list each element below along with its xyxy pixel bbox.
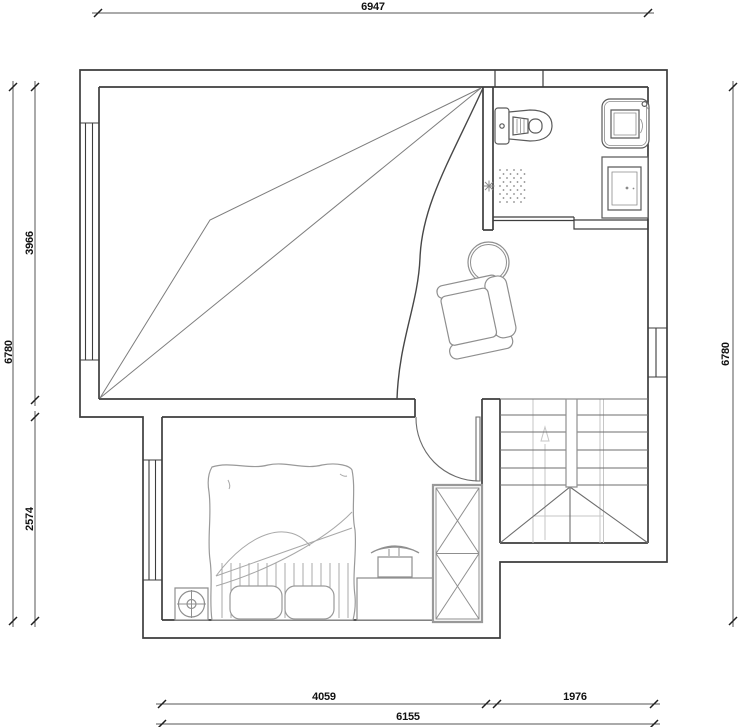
drain-dot	[520, 177, 522, 179]
dim-bottom-stair: 1976	[563, 691, 587, 703]
washbasin-symbol	[602, 99, 649, 148]
exterior-walls	[80, 70, 667, 638]
drain-dot	[503, 181, 505, 183]
drain-dot	[499, 201, 501, 203]
drain-dot	[499, 169, 501, 171]
dim-left-total: 6780	[3, 340, 15, 364]
drain-dot	[517, 173, 519, 175]
drain-plant-icon	[484, 181, 495, 192]
drain-dot	[517, 189, 519, 191]
drain-dot	[499, 185, 501, 187]
dim-right-total: 6780	[720, 342, 732, 366]
dim-bottom-bedroom: 4059	[312, 691, 336, 703]
drain-dot	[510, 173, 512, 175]
drain-dot	[499, 177, 501, 179]
dim-top-width: 6947	[361, 1, 385, 13]
drain-dot	[517, 181, 519, 183]
drain-dot	[506, 177, 508, 179]
drain-dot	[524, 189, 526, 191]
drain-dot	[513, 169, 515, 171]
floor-fan-symbol	[175, 588, 208, 620]
armchair-symbol	[436, 272, 520, 360]
pillow-right	[285, 586, 334, 619]
drain-dot	[524, 173, 526, 175]
dim-bottom-total: 6155	[396, 711, 420, 723]
shower-unit-symbol	[602, 157, 648, 218]
staircase	[500, 399, 648, 543]
drain-dot	[524, 197, 526, 199]
drain-dot	[520, 169, 522, 171]
bed-symbol	[208, 464, 355, 620]
drain-dot	[513, 201, 515, 203]
drain-dot	[517, 197, 519, 199]
drain-dot	[520, 185, 522, 187]
wardrobe-symbol	[433, 485, 482, 622]
floor-drain-icon	[484, 169, 526, 203]
toilet-symbol	[495, 108, 552, 144]
drain-dot	[520, 201, 522, 203]
drain-dot	[499, 193, 501, 195]
drain-dot	[503, 173, 505, 175]
window-left-upper	[80, 123, 99, 360]
drain-dot	[510, 197, 512, 199]
sloped-ceiling-lines	[100, 88, 481, 398]
drain-dot	[503, 197, 505, 199]
drain-dot	[506, 185, 508, 187]
faucet-icon	[642, 102, 647, 107]
dim-left-upper: 3966	[24, 231, 36, 255]
drain-dot	[510, 189, 512, 191]
drain-dot	[513, 177, 515, 179]
bedroom-door	[416, 417, 480, 481]
floor-plan-sheet: 6947 6780 3966 2574 6780 4059 1976	[0, 0, 740, 727]
drain-dot	[513, 185, 515, 187]
drain-dot	[506, 169, 508, 171]
drain-dot	[513, 193, 515, 195]
dim-left-lower: 2574	[24, 506, 36, 531]
stair-handrail	[566, 399, 577, 487]
drain-dot	[503, 189, 505, 191]
drain-dot	[506, 201, 508, 203]
drain-dot	[506, 193, 508, 195]
drain-dot	[510, 181, 512, 183]
interior-walls	[99, 87, 648, 620]
pillow-left	[230, 586, 282, 619]
floor-plan-drawing: 6947 6780 3966 2574 6780 4059 1976	[0, 0, 740, 727]
stair-winders	[500, 487, 648, 543]
drain-dot	[524, 181, 526, 183]
drain-dot	[520, 193, 522, 195]
tv-cabinet-symbol	[357, 546, 433, 620]
stair-up-arrow-icon	[541, 427, 549, 441]
window-bedroom-left	[143, 460, 162, 580]
window-right	[648, 328, 667, 377]
